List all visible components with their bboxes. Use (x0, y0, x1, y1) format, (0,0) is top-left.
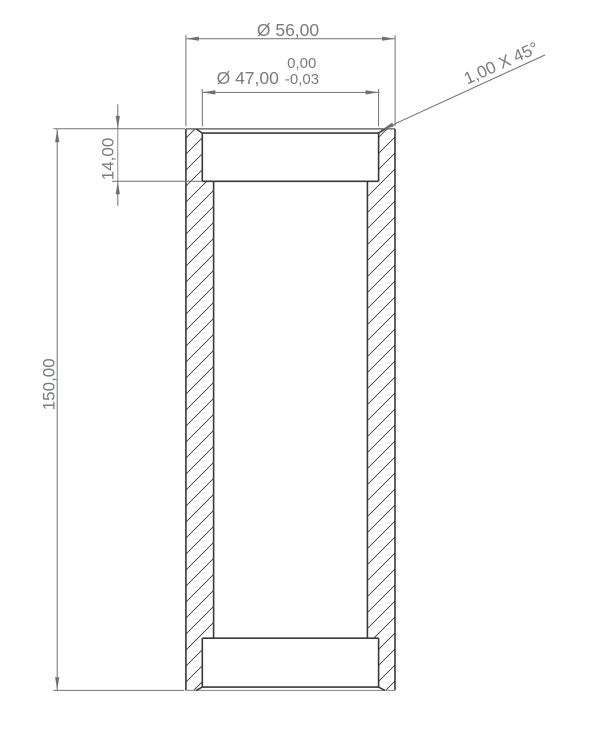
svg-text:150,00: 150,00 (40, 358, 59, 410)
svg-text:Ø 47,00: Ø 47,00 (217, 68, 280, 88)
svg-text:0,00: 0,00 (287, 55, 316, 72)
svg-text:-0,03: -0,03 (285, 71, 319, 88)
svg-text:14,00: 14,00 (99, 138, 118, 181)
svg-text:1,00 X 45°: 1,00 X 45° (461, 38, 541, 88)
svg-text:Ø 56,00: Ø 56,00 (257, 20, 320, 40)
